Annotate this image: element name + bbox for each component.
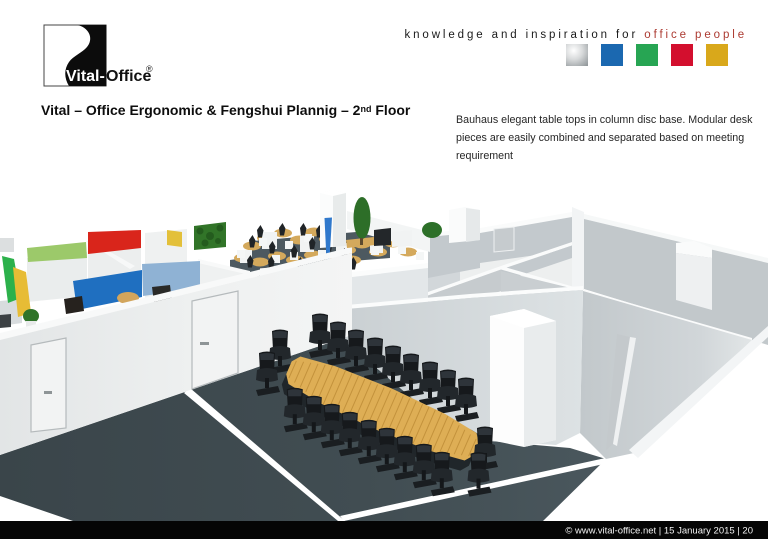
- svg-text:requirement: requirement: [456, 150, 513, 162]
- svg-text:© www.vital-office.net | 1: © www.vital-office.net | 15 January 2015…: [565, 526, 753, 537]
- svg-text:Office: Office: [106, 68, 151, 85]
- svg-text:®: ®: [146, 64, 153, 74]
- svg-text:Bauhaus elegant table tops in: Bauhaus elegant table tops in column dis…: [456, 114, 753, 126]
- svg-text:Vital-: Vital-: [66, 68, 105, 85]
- svg-text:knowledge and inspiration for: knowledge and inspiration for office peo…: [404, 29, 747, 41]
- svg-text:pieces are easily combined and: pieces are easily combined and separated…: [456, 132, 744, 144]
- svg-text:Vital – Office Ergonomic & Fen: Vital – Office Ergonomic & Fengshui Plan…: [41, 102, 411, 118]
